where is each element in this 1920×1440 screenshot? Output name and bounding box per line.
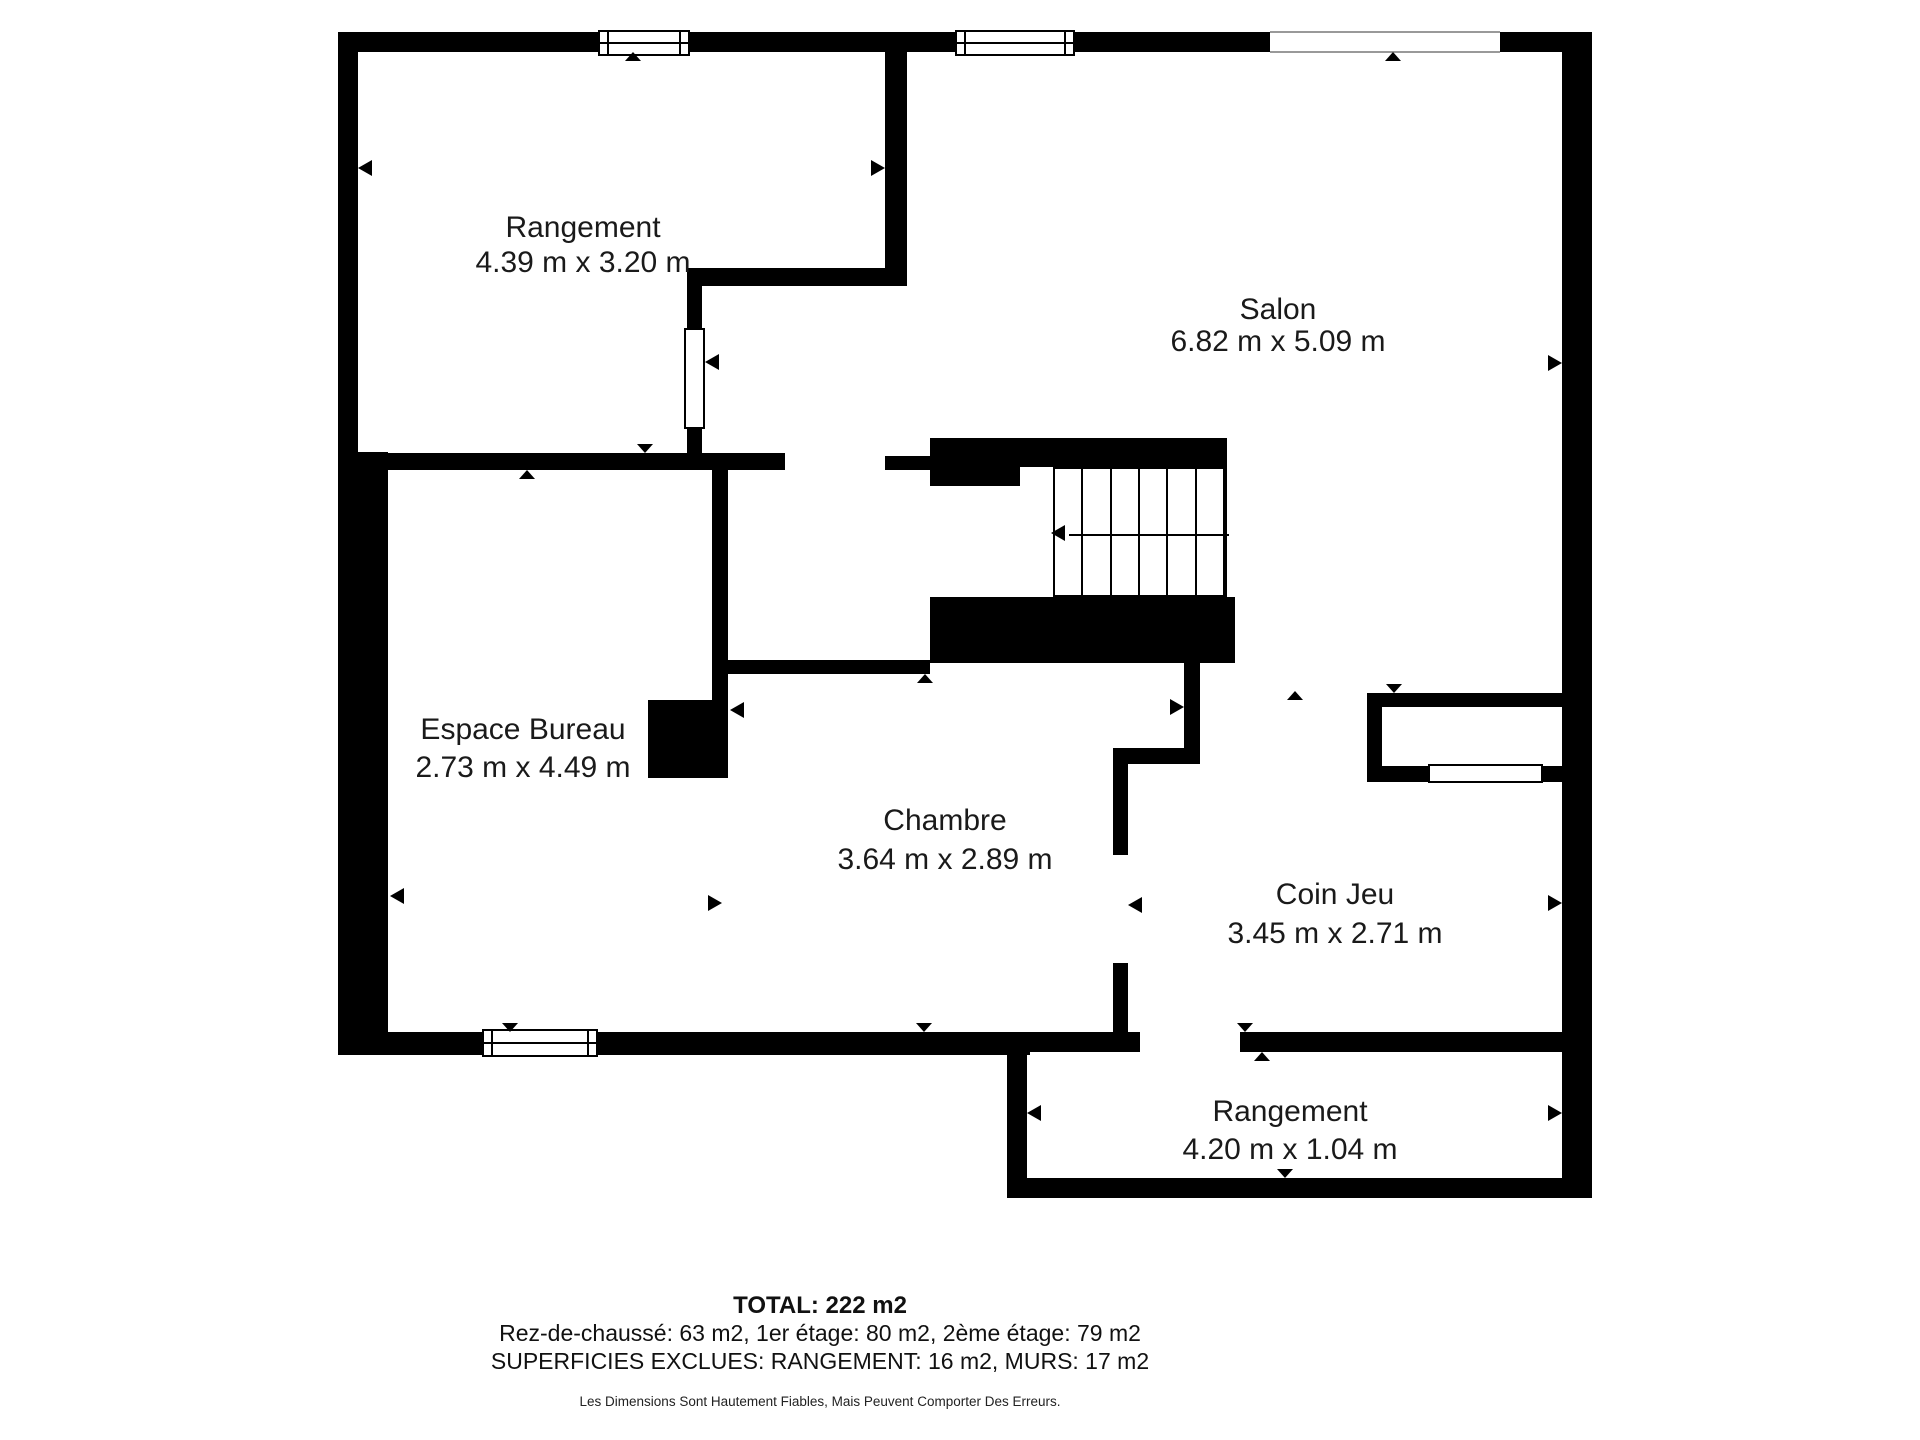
floor-plan-page: Rangement 4.39 m x 3.20 m Salon 6.82 m x… [0, 0, 1920, 1440]
direction-marker-right [1548, 1105, 1562, 1121]
direction-marker-down [1237, 1023, 1253, 1032]
room-dims-rangement-top: 4.39 m x 3.20 m [475, 248, 690, 278]
wall [712, 458, 728, 702]
wall [1007, 1178, 1592, 1198]
direction-marker-down [1277, 1169, 1293, 1178]
window-detail [491, 1031, 493, 1055]
direction-marker-right [1170, 699, 1184, 715]
room-label-salon: Salon [1240, 295, 1317, 325]
direction-marker-up [1287, 691, 1303, 700]
stair-tread [1083, 469, 1111, 595]
direction-marker-right [1548, 895, 1562, 911]
wall [1113, 963, 1128, 1036]
wall [338, 1032, 482, 1055]
wall [687, 268, 907, 286]
stair-run-line [1069, 534, 1229, 536]
window-detail [607, 32, 609, 54]
wall [930, 597, 1235, 663]
direction-marker-left [1051, 525, 1065, 541]
wall [1240, 1032, 1562, 1052]
window-icon [598, 30, 690, 56]
wall [338, 32, 358, 470]
wall [338, 452, 388, 1055]
wall [1184, 663, 1200, 750]
window-icon [955, 30, 1075, 56]
room-label-coin-jeu: Coin Jeu [1276, 880, 1394, 910]
wall [1113, 764, 1128, 855]
stair-tread [1168, 469, 1196, 595]
direction-marker-left [730, 702, 744, 718]
footer-disclaimer: Les Dimensions Sont Hautement Fiables, M… [580, 1394, 1061, 1409]
window-detail [679, 32, 681, 54]
wall [648, 700, 728, 778]
room-dims-chambre: 3.64 m x 2.89 m [837, 845, 1052, 875]
direction-marker-up [625, 52, 641, 61]
wall [1367, 693, 1382, 782]
window-icon [1428, 764, 1543, 783]
wall [1113, 748, 1200, 764]
direction-marker-left [1027, 1105, 1041, 1121]
window-detail [484, 1042, 596, 1044]
window-detail [1064, 32, 1066, 54]
wall [598, 1032, 1030, 1055]
direction-marker-up [519, 470, 535, 479]
wall [1382, 766, 1428, 782]
window-detail [587, 1031, 589, 1055]
staircase [1053, 467, 1227, 597]
wall [1543, 766, 1562, 782]
door-icon [684, 328, 705, 429]
stair-tread [1140, 469, 1168, 595]
wall [930, 467, 1020, 486]
direction-marker-down [916, 1023, 932, 1032]
wall [338, 32, 598, 52]
room-label-rangement-bottom: Rangement [1212, 1097, 1367, 1127]
wall [1007, 1032, 1027, 1198]
direction-marker-down [1386, 684, 1402, 693]
footer-excluded-areas: SUPERFICIES EXCLUES: RANGEMENT: 16 m2, M… [491, 1348, 1149, 1375]
room-dims-espace-bureau: 2.73 m x 4.49 m [415, 753, 630, 783]
direction-marker-right [1548, 355, 1562, 371]
footer-floor-areas: Rez-de-chaussé: 63 m2, 1er étage: 80 m2,… [499, 1320, 1141, 1347]
wall [690, 32, 955, 52]
direction-marker-left [705, 354, 719, 370]
direction-marker-left [1128, 897, 1142, 913]
room-dims-rangement-bottom: 4.20 m x 1.04 m [1182, 1135, 1397, 1165]
window-detail [964, 32, 966, 54]
direction-marker-up [1254, 1052, 1270, 1061]
direction-marker-up [917, 674, 933, 683]
direction-marker-left [358, 160, 372, 176]
wall [930, 438, 1227, 467]
wall [1027, 1032, 1140, 1052]
direction-marker-up [1385, 52, 1401, 61]
room-dims-coin-jeu: 3.45 m x 2.71 m [1227, 919, 1442, 949]
wall [728, 660, 930, 674]
wall [1562, 32, 1592, 1198]
direction-marker-right [871, 160, 885, 176]
wall [1075, 32, 1270, 52]
direction-marker-right [708, 895, 722, 911]
direction-marker-down [637, 444, 653, 453]
wall [885, 32, 907, 285]
window-icon [482, 1029, 598, 1057]
wall [1367, 693, 1562, 707]
direction-marker-left [390, 888, 404, 904]
room-dims-salon: 6.82 m x 5.09 m [1170, 327, 1385, 357]
wall-opening [1270, 31, 1500, 53]
stair-tread [1112, 469, 1140, 595]
direction-marker-down [502, 1023, 518, 1032]
window-detail [600, 42, 688, 44]
room-label-rangement-top: Rangement [505, 213, 660, 243]
wall [885, 456, 930, 470]
footer-total-area: TOTAL: 222 m2 [733, 1292, 907, 1320]
room-label-espace-bureau: Espace Bureau [420, 715, 625, 745]
window-detail [957, 42, 1073, 44]
stair-tread [1197, 469, 1225, 595]
room-label-chambre: Chambre [883, 806, 1006, 836]
